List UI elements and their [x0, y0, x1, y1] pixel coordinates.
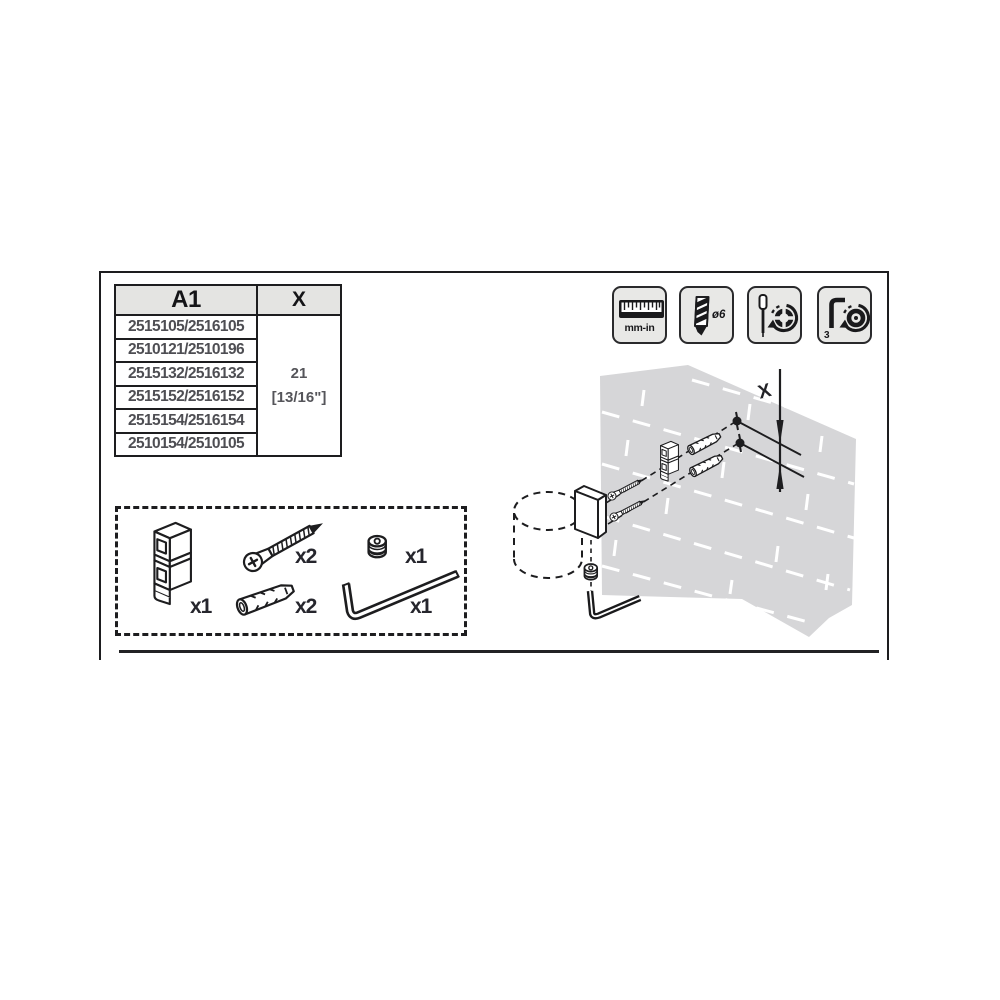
model-number: 2510154/2510105 [115, 433, 257, 457]
instruction-step-frame: A1 X 2515105/2516105 21 [13/16"] 2510121… [99, 271, 889, 660]
screwdriver-graphic [749, 288, 804, 346]
assembly-diagram: X [492, 360, 892, 660]
dimension-value-cell: 21 [13/16"] [257, 315, 341, 456]
section-divider [119, 650, 879, 653]
table-row: 2515105/2516105 21 [13/16"] [115, 315, 341, 339]
allen-key-icon: 3 [817, 286, 872, 344]
drill-diameter-label: ø6 [712, 309, 725, 321]
set-screw-small [584, 564, 597, 580]
model-number: 2515154/2516154 [115, 409, 257, 433]
wall-bracket-drawing [154, 523, 190, 604]
model-number: 2515105/2516105 [115, 315, 257, 339]
ruler-graphic [614, 288, 669, 346]
model-number: 2515132/2516132 [115, 362, 257, 386]
allen-key-size-label: 3 [824, 330, 830, 341]
model-number: 2510121/2510196 [115, 339, 257, 363]
allen-key-drawing [343, 571, 459, 616]
screw-qty: x2 [295, 545, 316, 569]
model-table-header-row: A1 X [115, 285, 341, 315]
parts-box: x1 x2 x2 x1 x1 [115, 506, 467, 636]
drill-bit-graphic [681, 288, 736, 346]
product-outline [514, 492, 582, 578]
dimension-column-header: X [257, 285, 341, 315]
dimension-value-inch: [13/16"] [258, 386, 340, 409]
mounting-plate [575, 486, 606, 538]
set-screw-drawing [369, 536, 386, 557]
drill-bit-icon: ø6 [679, 286, 734, 344]
anchor-qty: x2 [295, 595, 316, 619]
set-screw-qty: x1 [405, 545, 426, 569]
ruler-icon: mm-in [612, 286, 667, 344]
allen-key-qty: x1 [410, 595, 431, 619]
wall-anchor-drawing [235, 581, 295, 616]
model-number: 2515152/2516152 [115, 386, 257, 410]
model-column-header: A1 [115, 285, 257, 315]
model-table: A1 X 2515105/2516105 21 [13/16"] 2510121… [114, 284, 342, 457]
ruler-unit-label: mm-in [614, 322, 665, 334]
bracket-qty: x1 [190, 595, 211, 619]
dimension-value-mm: 21 [258, 362, 340, 385]
screwdriver-icon [747, 286, 802, 344]
